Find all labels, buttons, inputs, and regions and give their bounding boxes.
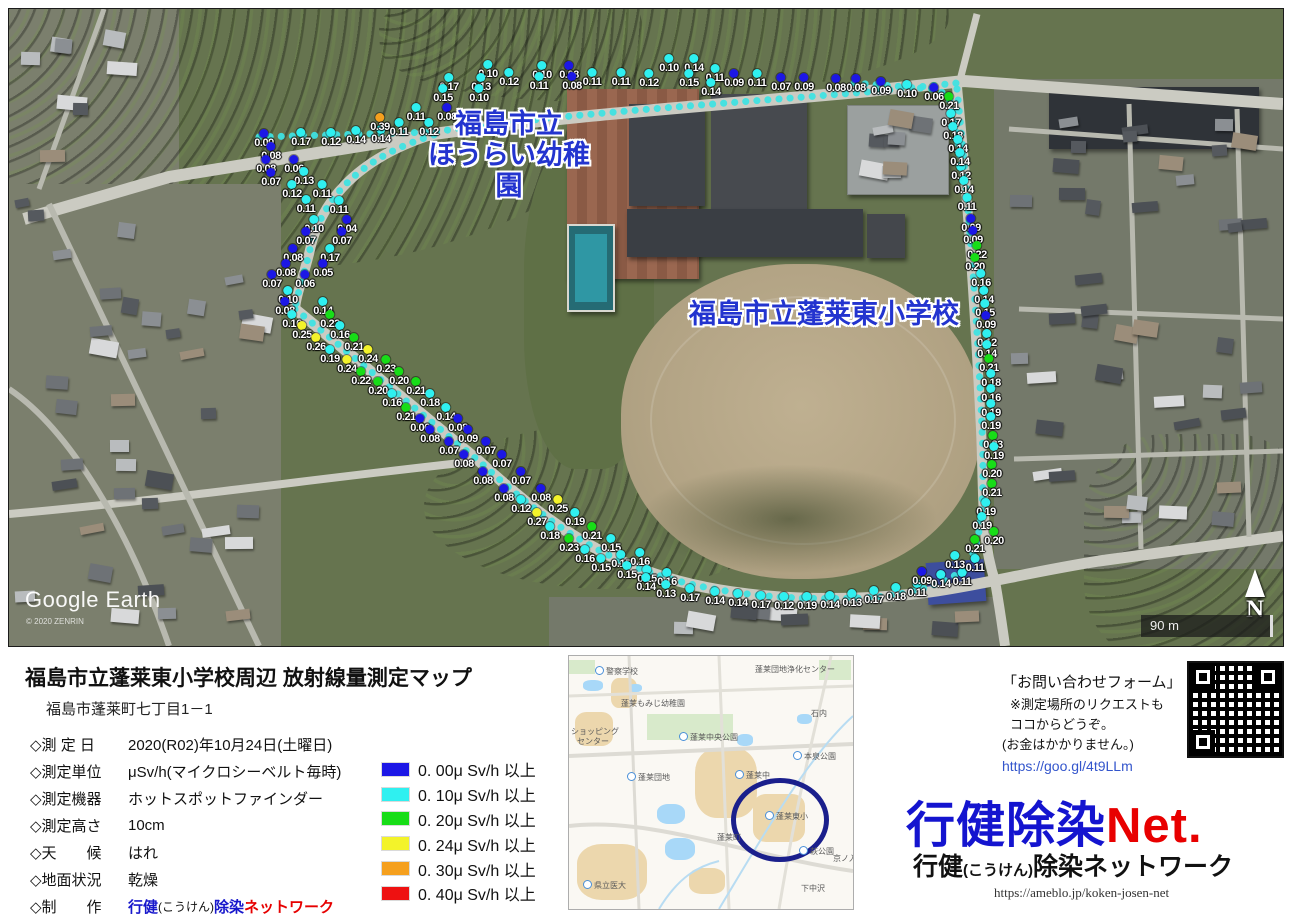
inset-place-label: 石内 — [811, 708, 827, 719]
info-label: ◇地面状況 — [30, 869, 128, 890]
info-row-maker: ◇制 作行健(こうけん)除染ネットワーク — [30, 893, 341, 920]
network-name-part2: 除染ネットワーク — [1033, 853, 1233, 881]
info-value: はれ — [128, 842, 158, 863]
house-roof — [1085, 200, 1101, 217]
inset-place-label: 蓬莱町 — [717, 832, 741, 843]
house-roof — [201, 408, 216, 420]
legend-row: 0. 10μ Sv/h 以上 — [382, 782, 536, 807]
place-marker-icon — [735, 770, 744, 779]
house-roof — [1049, 312, 1076, 324]
legend-label: 0. 00μ Sv/h 以上 — [418, 757, 536, 781]
network-name: 行健(こうけん)除染ネットワーク — [913, 847, 1233, 883]
inset-place-name: 京ノ入 — [833, 854, 854, 863]
house-roof — [90, 325, 113, 337]
maker-josen-blue: 除染 — [214, 896, 244, 917]
house-roof — [73, 103, 88, 116]
legend-label: 0. 20μ Sv/h 以上 — [418, 807, 536, 831]
info-label: ◇測定高さ — [30, 815, 128, 836]
legend-row: 0. 00μ Sv/h 以上 — [382, 757, 536, 782]
inset-place-label: 蓬莱東小 — [765, 811, 808, 822]
inset-place-name: センター — [577, 737, 609, 746]
info-value: 2020(R02)年10月24日(土曜日) — [128, 734, 332, 755]
house-roof — [1215, 119, 1233, 131]
place-marker-icon — [583, 880, 592, 889]
legend-row: 0. 24μ Sv/h 以上 — [382, 831, 536, 856]
house-roof — [1027, 371, 1057, 384]
legend-label: 0. 10μ Sv/h 以上 — [418, 782, 536, 806]
house-roof — [1241, 218, 1268, 230]
legend-row: 0. 20μ Sv/h 以上 — [382, 807, 536, 832]
house-roof — [46, 375, 69, 390]
maker-name-blue: 行健 — [128, 896, 158, 917]
house-roof — [1211, 145, 1227, 157]
house-roof — [931, 621, 958, 636]
inset-place-name: 県立医大 — [594, 881, 626, 890]
contact-form-link[interactable]: https://goo.gl/4t9LLm — [1002, 755, 1182, 777]
contact-note-3: (お金はかかりません。) — [1002, 735, 1182, 755]
maker-network-red: ネットワーク — [244, 896, 334, 917]
house-roof — [121, 297, 139, 315]
house-roof — [1217, 482, 1242, 494]
copyright-text: © 2020 ZENRIN — [26, 617, 84, 626]
page-title: 福島市立蓬莱東小学校周辺 放射線量測定マップ — [25, 662, 472, 692]
info-value: μSv/h(マイクロシーベルト毎時) — [128, 761, 341, 782]
house-roof — [781, 613, 808, 625]
inset-place-label: センター — [577, 736, 609, 747]
logo-text-red: Net. — [1106, 799, 1203, 853]
legend-row: 0. 30μ Sv/h 以上 — [382, 856, 536, 881]
inset-place-label: 下中沢 — [801, 883, 825, 894]
house-roof — [868, 134, 885, 148]
place-marker-icon — [595, 666, 604, 675]
house-roof — [28, 210, 44, 222]
house-roof — [103, 29, 126, 48]
house-roof — [888, 131, 906, 145]
info-row: ◇測定機器ホットスポットファインダー — [30, 785, 341, 812]
house-roof — [40, 149, 65, 161]
house-roof — [127, 347, 146, 358]
info-value: 乾燥 — [128, 869, 158, 890]
legend-label: 0. 40μ Sv/h 以上 — [418, 881, 536, 905]
house-roof — [190, 537, 213, 552]
house-roof — [187, 299, 206, 317]
contact-form-title: 「お問い合わせフォーム」 — [1002, 671, 1182, 692]
network-name-reading: (こうけん) — [963, 862, 1033, 879]
legend-color-swatch — [382, 837, 409, 850]
inset-place-name: 石内 — [811, 709, 827, 718]
place-marker-icon — [627, 772, 636, 781]
info-label: ◇測 定 日 — [30, 734, 128, 755]
house-roof — [1212, 511, 1235, 527]
legend-label: 0. 24μ Sv/h 以上 — [418, 832, 536, 856]
inset-place-name: 警察学校 — [606, 667, 638, 676]
inset-place-label: 警察学校 — [595, 666, 638, 677]
house-roof — [1036, 419, 1065, 436]
logo-text-blue: 行健除染 — [906, 799, 1106, 853]
legend-color-swatch — [382, 887, 409, 900]
inset-place-name: ショッピング — [571, 727, 619, 736]
info-label: ◇測定単位 — [30, 761, 128, 782]
house-roof — [1071, 141, 1086, 153]
house-roof — [107, 61, 138, 76]
house-roof — [225, 537, 253, 549]
contact-block: 「お問い合わせフォーム」 ※測定場所のリクエストも ココからどうぞ。 (お金はか… — [1002, 671, 1182, 777]
house-roof — [1059, 188, 1085, 200]
house-roof — [1176, 174, 1195, 186]
kindergarten-label-line2: ほうらい幼稚園 — [424, 140, 594, 202]
house-roof — [955, 610, 979, 622]
map-scale-bar: 90 m — [1141, 615, 1273, 637]
place-marker-icon — [765, 811, 774, 820]
inset-place-label: 蓬莱団地浄化センター — [755, 664, 835, 675]
kindergarten-label: 福島市立 ほうらい幼稚園 — [424, 109, 594, 202]
inset-place-name: 蓬莱もみじ幼稚園 — [621, 699, 685, 708]
house-roof — [55, 398, 78, 415]
inset-place-name: 蓬莱団地浄化センター — [755, 665, 835, 674]
house-roof — [100, 287, 122, 299]
house-roof — [110, 393, 134, 405]
inset-place-label: 蓬莱中 — [735, 770, 770, 781]
info-row: ◇測定高さ10cm — [30, 812, 341, 839]
qr-finder-pattern — [1191, 730, 1215, 754]
house-roof — [1158, 505, 1187, 519]
legend-color-swatch — [382, 862, 409, 875]
north-arrow-icon — [1245, 569, 1265, 597]
house-roof — [882, 161, 906, 175]
inset-place-label: 蓬莱団地 — [627, 772, 670, 783]
house-roof — [850, 614, 880, 629]
inset-place-name: 蓬莱中央公園 — [690, 733, 738, 742]
qr-finder-pattern — [1191, 665, 1215, 689]
info-row: ◇地面状況乾燥 — [30, 866, 341, 893]
house-roof — [1154, 395, 1184, 407]
house-roof — [110, 440, 129, 452]
inset-place-name: 蓬莱団地 — [638, 773, 670, 782]
house-roof — [114, 488, 135, 500]
inset-place-name: 蓬莱町 — [717, 833, 741, 842]
house-roof — [1158, 155, 1183, 171]
school-address: 福島市蓬莱町七丁目1－1 — [46, 698, 213, 719]
satellite-map: 0.090.170.120.140.140.080.080.060.070.13… — [8, 8, 1284, 647]
inset-place-label: 京ノ入 — [833, 853, 854, 864]
inset-place-label: 萩公園 — [799, 846, 834, 857]
inset-place-name: 萩公園 — [810, 847, 834, 856]
inset-place-name: 下中沢 — [801, 884, 825, 893]
info-row: ◇天 候はれ — [30, 839, 341, 866]
place-marker-icon — [799, 846, 808, 855]
house-roof — [142, 311, 162, 326]
house-roof — [54, 39, 72, 54]
house-roof — [21, 51, 41, 64]
qr-finder-pattern — [1256, 665, 1280, 689]
inset-place-name: 蓬莱中 — [746, 771, 770, 780]
qr-code — [1187, 661, 1284, 758]
contact-note-2: ココからどうぞ。 — [1010, 715, 1182, 735]
legend-color-swatch — [382, 812, 409, 825]
house-roof — [1240, 381, 1262, 393]
house-roof — [142, 497, 158, 509]
house-roof — [1049, 470, 1076, 482]
house-roof — [60, 458, 82, 470]
house-roof — [1011, 352, 1029, 364]
info-value: 10cm — [128, 817, 165, 834]
house-roof — [1216, 337, 1234, 354]
network-name-part1: 行健 — [913, 853, 963, 881]
legend-row: 0. 40μ Sv/h 以上 — [382, 881, 536, 906]
inset-place-label: 本泉公園 — [793, 751, 836, 762]
inset-place-label: 蓬莱もみじ幼稚園 — [621, 698, 685, 709]
inset-place-name: 本泉公園 — [804, 752, 836, 761]
google-earth-logo: Google Earth — [25, 587, 161, 613]
house-roof — [1010, 195, 1032, 208]
legend-color-swatch — [382, 763, 409, 776]
info-value: ホットスポットファインダー — [128, 788, 323, 809]
inset-place-label: 蓬莱中央公園 — [679, 732, 738, 743]
info-label: ◇天 候 — [30, 842, 128, 863]
house-roof — [1132, 201, 1158, 213]
info-row: ◇測定単位μSv/h(マイクロシーベルト毎時) — [30, 758, 341, 785]
legend-label: 0. 30μ Sv/h 以上 — [418, 857, 536, 881]
house-roof — [1132, 319, 1159, 338]
legend-color-swatch — [382, 788, 409, 801]
house-roof — [1123, 130, 1138, 142]
measurement-info-list: ◇測 定 日2020(R02)年10月24日(土曜日)◇測定単位μSv/h(マイ… — [30, 731, 341, 920]
info-label: ◇測定機器 — [30, 788, 128, 809]
maker-reading: (こうけん) — [158, 898, 214, 915]
house-roof — [116, 459, 136, 472]
dose-legend: 0. 00μ Sv/h 以上0. 10μ Sv/h 以上0. 20μ Sv/h … — [382, 757, 536, 906]
info-row: ◇測 定 日2020(R02)年10月24日(土曜日) — [30, 731, 341, 758]
house-roof — [730, 604, 757, 621]
info-label: ◇制 作 — [30, 896, 128, 917]
place-marker-icon — [793, 751, 802, 760]
kindergarten-label-line1: 福島市立 — [424, 109, 594, 140]
inset-place-label: 県立医大 — [583, 880, 626, 891]
inset-location-map: 警察学校蓬莱団地浄化センター蓬莱もみじ幼稚園ショッピングセンター蓬莱中央公園石内… — [568, 655, 854, 910]
house-roof — [1126, 495, 1148, 512]
house-roof — [236, 505, 259, 518]
place-marker-icon — [679, 732, 688, 741]
house-roof — [118, 221, 137, 238]
blog-url[interactable]: https://ameblo.jp/koken-josen-net — [994, 885, 1169, 901]
contact-note-1: ※測定場所のリクエストも — [1010, 695, 1182, 715]
house-roof — [1053, 158, 1080, 174]
inset-place-name: 蓬莱東小 — [776, 812, 808, 821]
inset-roads — [569, 656, 853, 909]
school-label: 福島市立蓬莱東小学校 — [674, 299, 974, 330]
house-roof — [1203, 384, 1222, 398]
